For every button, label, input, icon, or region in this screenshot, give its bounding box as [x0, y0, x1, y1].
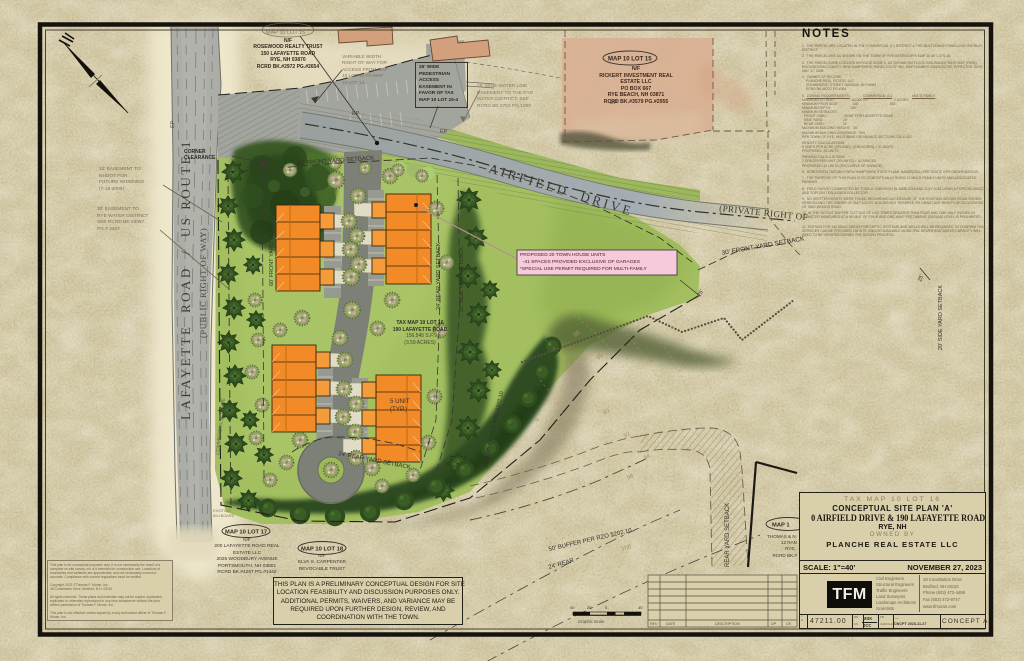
- svg-text:MAP 10 LOT 15: MAP 10 LOT 15: [266, 30, 305, 36]
- svg-text:24' REAR YARD SETBACK: 24' REAR YARD SETBACK: [436, 242, 442, 310]
- svg-text:60' FRONT YARD SETBACK: 60' FRONT YARD SETBACK: [269, 215, 275, 286]
- svg-text:MAP 10 LOT 15: MAP 10 LOT 15: [608, 57, 652, 63]
- svg-text:MAP 10 LOT 17: MAP 10 LOT 17: [225, 530, 267, 536]
- svg-text:REAR YARD SETBACK: REAR YARD SETBACK: [725, 503, 731, 567]
- svg-text:(PUBLIC RIGHT OF WAY): (PUBLIC RIGHT OF WAY): [198, 228, 208, 338]
- svg-text:MAP 1: MAP 1: [772, 523, 790, 529]
- svg-text:EP: EP: [170, 120, 176, 128]
- svg-text:20' SIDE YARD SETBACK: 20' SIDE YARD SETBACK: [459, 247, 465, 312]
- svg-text:20' SIDE YARD SETBACK: 20' SIDE YARD SETBACK: [938, 285, 944, 350]
- svg-text:EP: EP: [352, 111, 360, 117]
- svg-text:EP: EP: [440, 129, 448, 135]
- svg-text:MAP 10 LOT 18: MAP 10 LOT 18: [301, 547, 344, 553]
- svg-text:LAFAYETTE ROAD / US ROUTE 1: LAFAYETTE ROAD / US ROUTE 1: [178, 139, 193, 420]
